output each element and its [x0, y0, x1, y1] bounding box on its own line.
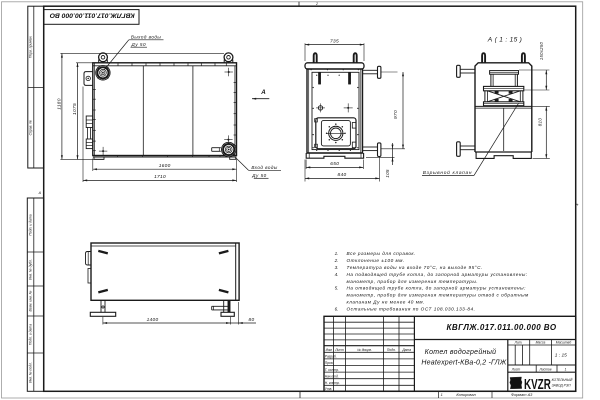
- svg-text:КВГЛЖ.017.011.00.000 ВО: КВГЛЖ.017.011.00.000 ВО: [49, 12, 135, 19]
- svg-text:На подводящей трубе котла, до: На подводящей трубе котла, до запорной а…: [347, 271, 528, 277]
- svg-text:Листов: Листов: [538, 368, 551, 372]
- svg-text:1: 1: [565, 368, 567, 372]
- svg-text:Н. контр.: Н. контр.: [325, 381, 340, 385]
- svg-text:Пров.: Пров.: [325, 361, 334, 365]
- svg-text:Изм: Изм: [326, 348, 333, 352]
- svg-text:Все размеры для справок.: Все размеры для справок.: [347, 251, 416, 256]
- svg-text:А ( 1 : 15 ): А ( 1 : 15 ): [487, 37, 522, 44]
- svg-text:Взрывной клапан: Взрывной клапан: [423, 169, 472, 176]
- svg-text:80: 80: [249, 317, 255, 323]
- svg-text:970: 970: [393, 110, 399, 119]
- svg-text:3.: 3.: [335, 265, 339, 270]
- svg-text:1400: 1400: [147, 317, 159, 323]
- svg-text:6.: 6.: [335, 306, 339, 311]
- svg-text:Подп.: Подп.: [387, 348, 396, 352]
- svg-text:ЗАВОД РЭП: ЗАВОД РЭП: [552, 384, 572, 388]
- svg-text:Нач.отд.: Нач.отд.: [325, 374, 339, 378]
- svg-text:Лист: Лист: [511, 368, 521, 372]
- svg-text:Вход воды: Вход воды: [251, 165, 278, 170]
- svg-text:Отклонение ±100 мм.: Отклонение ±100 мм.: [347, 258, 405, 263]
- svg-text:Подп. и дата: Подп. и дата: [28, 214, 32, 235]
- svg-text:1180: 1180: [56, 98, 62, 110]
- svg-text:Подп. и дата: Подп. и дата: [28, 324, 32, 345]
- svg-text:105: 105: [385, 169, 390, 178]
- svg-text:2.: 2.: [334, 258, 339, 263]
- svg-text:1: 1: [441, 393, 443, 397]
- svg-text:клапанам Ду не менее 40 мм.: клапанам Ду не менее 40 мм.: [347, 300, 425, 305]
- svg-text:150х250: 150х250: [539, 42, 544, 61]
- svg-text:Масштаб: Масштаб: [556, 341, 572, 345]
- svg-text:650: 650: [330, 161, 339, 167]
- svg-text:Остальные требования по ОСТ 10: Остальные требования по ОСТ 108.030.133-…: [347, 306, 476, 311]
- svg-text:Инв. № подл.: Инв. № подл.: [28, 362, 32, 383]
- svg-text:1 : 15: 1 : 15: [555, 352, 567, 358]
- svg-text:манометр, прибор для измерения: манометр, прибор для измерения температу…: [347, 293, 530, 298]
- svg-text:1710: 1710: [154, 174, 166, 180]
- svg-text:А: А: [260, 89, 266, 96]
- svg-text:Дата: Дата: [401, 348, 411, 352]
- svg-text:840: 840: [338, 172, 347, 178]
- svg-text:КВГЛЖ.017.011.00.000 ВО: КВГЛЖ.017.011.00.000 ВО: [446, 323, 556, 332]
- svg-text:Heatexpert-КВа-0,2 -ГЛЖ: Heatexpert-КВа-0,2 -ГЛЖ: [421, 359, 506, 366]
- svg-text:Т. контр.: Т. контр.: [325, 368, 339, 372]
- svg-text:KVZR: KVZR: [524, 376, 551, 393]
- svg-text:Утв.: Утв.: [325, 387, 333, 391]
- svg-text:1.: 1.: [335, 251, 339, 256]
- svg-text:Лист: Лист: [334, 348, 344, 352]
- svg-text:Разраб.: Разраб.: [325, 355, 337, 359]
- svg-text:Копировал: Копировал: [456, 392, 476, 397]
- svg-text:5.: 5.: [335, 286, 339, 291]
- svg-text:735: 735: [330, 38, 339, 44]
- svg-text:Справ. №: Справ. №: [28, 120, 32, 136]
- svg-text:2: 2: [315, 2, 318, 6]
- svg-text:Взам. инв. №: Взам. инв. №: [28, 290, 32, 311]
- svg-text:Температура воды на входе 70°С: Температура воды на входе 70°С, на выход…: [347, 265, 483, 270]
- svg-text:4: 4: [576, 203, 580, 205]
- svg-text:1600: 1600: [159, 163, 171, 169]
- svg-text:№ докум.: № докум.: [357, 348, 372, 352]
- svg-text:манометр, прибор для измерения: манометр, прибор для измерения температу…: [347, 279, 479, 284]
- svg-text:На отводящей трубе котла, до з: На отводящей трубе котла, до запорной ар…: [347, 285, 527, 291]
- svg-text:810: 810: [538, 118, 543, 127]
- svg-text:Ду 50: Ду 50: [251, 173, 266, 178]
- svg-text:КОТЕЛЬНЫЙ: КОТЕЛЬНЫЙ: [552, 378, 573, 382]
- svg-text:Перв. примен.: Перв. примен.: [28, 35, 32, 58]
- svg-text:Котел водогрейный: Котел водогрейный: [425, 348, 497, 356]
- svg-text:Масса: Масса: [536, 341, 546, 345]
- svg-text:Выход воды: Выход воды: [131, 35, 162, 40]
- svg-text:Лит.: Лит.: [514, 341, 523, 345]
- svg-text:1075: 1075: [72, 103, 78, 115]
- svg-text:Ду 50: Ду 50: [131, 42, 146, 47]
- svg-text:Инв. № дубл.: Инв. № дубл.: [28, 259, 32, 280]
- svg-text:А: А: [38, 191, 42, 195]
- svg-text:4.: 4.: [335, 272, 339, 277]
